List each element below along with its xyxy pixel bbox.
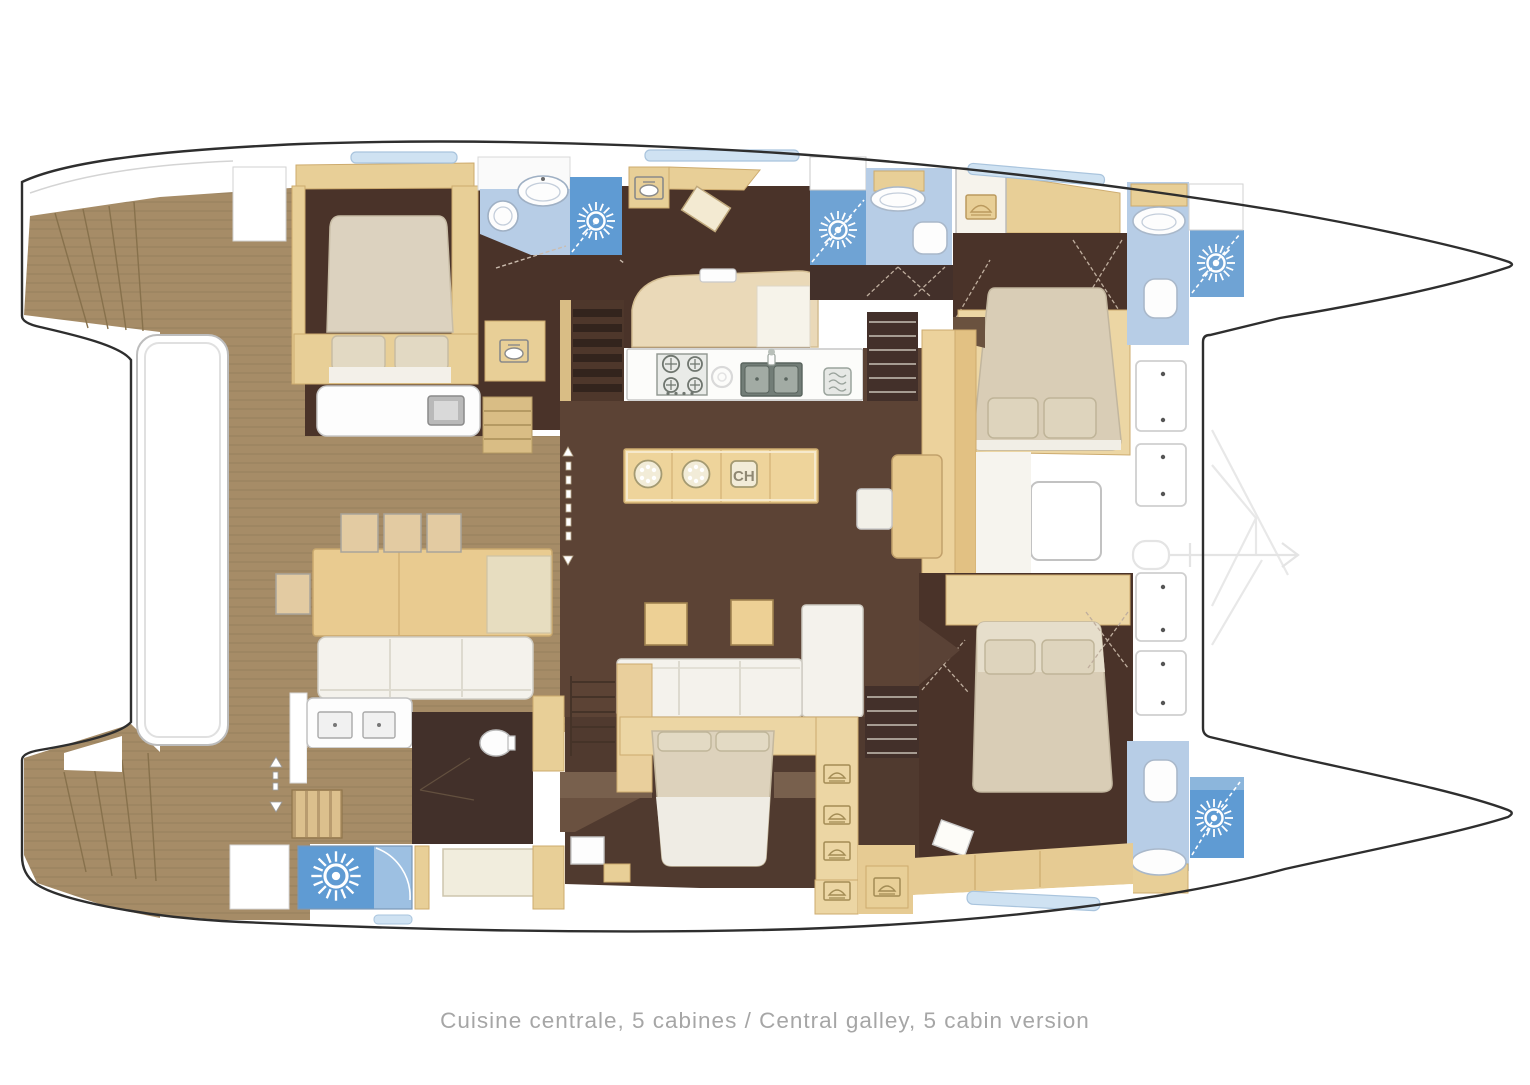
svg-text:CH: CH [733, 468, 755, 485]
svg-text:Cuisine centrale, 5 cabines /: Cuisine centrale, 5 cabines / Central ga… [440, 1008, 1090, 1033]
